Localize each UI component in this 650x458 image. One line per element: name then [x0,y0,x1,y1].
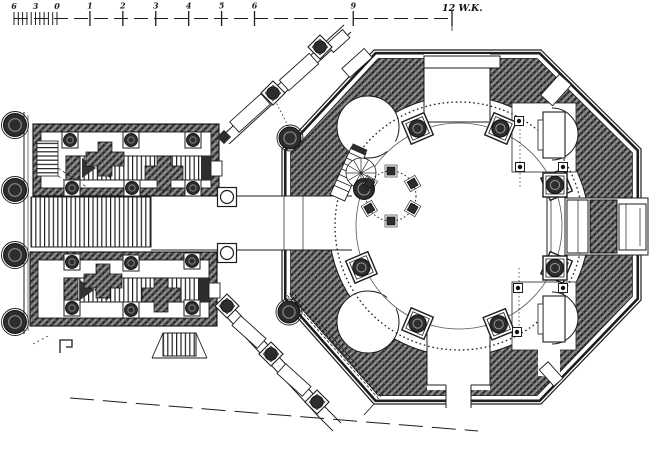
column-shaft [187,182,200,195]
post-dot [561,286,565,290]
south-annex-stair [152,333,207,358]
scale-unit-label: 5 [219,1,225,11]
floor-plan-svg: 630123456912 W.K. [0,0,650,458]
hall-column [123,302,139,318]
north-entrance-lintel [424,56,500,68]
grand-stair [31,197,151,247]
scale-unit-label: 1 [87,1,93,11]
bimah-post [385,165,397,177]
post-square [387,217,395,225]
hall-column [185,132,201,148]
hall-column [185,180,201,196]
hall-column [123,255,139,271]
column-shaft [187,134,200,147]
column-shaft [278,301,300,323]
rotunda-column [543,256,567,280]
post-dot [518,165,522,169]
scale-bar: 630123456912 W.K. [11,1,482,32]
niche-post [516,163,525,172]
post-dot [561,165,565,169]
column-shaft [4,179,27,202]
upper-left-stair [37,141,58,176]
column-shaft [66,302,79,315]
column-shaft [66,182,79,195]
octagon-corner-column [277,125,303,151]
hall-column [124,180,140,196]
column-shaft [4,114,27,137]
column-shaft [186,302,199,315]
scale-subdivision-label: 6 [11,1,17,11]
portico-column [2,242,29,269]
free-column [218,244,237,263]
column-shaft [125,257,138,270]
scale-unit-label: 9 [350,1,356,11]
column-shaft [4,311,27,334]
octagon-building [151,50,650,409]
bimah-post [385,215,397,227]
column-shaft [66,256,79,269]
niche-post [514,284,523,293]
south-porch [446,388,471,409]
scale-subdivision-label: 3 [33,1,39,11]
post-dot [517,119,521,123]
post-square [387,167,395,175]
hall-column [64,180,80,196]
column-shaft [126,182,139,195]
annex-wing [2,112,237,359]
niche-post [515,117,524,126]
niche-post [559,284,568,293]
column-shaft [64,134,77,147]
niche-post [559,163,568,172]
floor-plan-figure: 630123456912 W.K. [0,0,650,458]
south-corridor [427,314,490,390]
hall-column [123,132,139,148]
gallery-column [305,390,329,414]
column-shaft [4,244,27,267]
niche-post [513,328,522,337]
hall-column [64,254,80,270]
rotunda-column [543,173,567,197]
column-shaft [546,259,563,276]
scale-unit-label: 6 [252,1,258,11]
hall-column [64,300,80,316]
free-column [218,188,237,207]
column-shaft [125,304,138,317]
portico-column [2,177,29,204]
gallery-column [259,342,283,366]
column-shaft [279,127,301,149]
portico-column [2,309,29,336]
column-shaft [186,255,199,268]
scale-unit-label: 4 [186,1,192,11]
scale-unit-label: 3 [153,1,159,11]
survey-mark [60,340,72,353]
hall-column [184,300,200,316]
column-shaft [546,176,563,193]
column-shaft [125,134,138,147]
post-dot [516,286,520,290]
sw-band-end [364,404,374,415]
hall-column [62,132,78,148]
scale-subdivision-label: 0 [54,1,60,11]
scale-end-label: 12 W.K. [442,3,483,14]
portico-column [2,112,29,139]
scale-unit-label: 2 [119,1,126,11]
post-dot [515,330,519,334]
hall-column [184,253,200,269]
